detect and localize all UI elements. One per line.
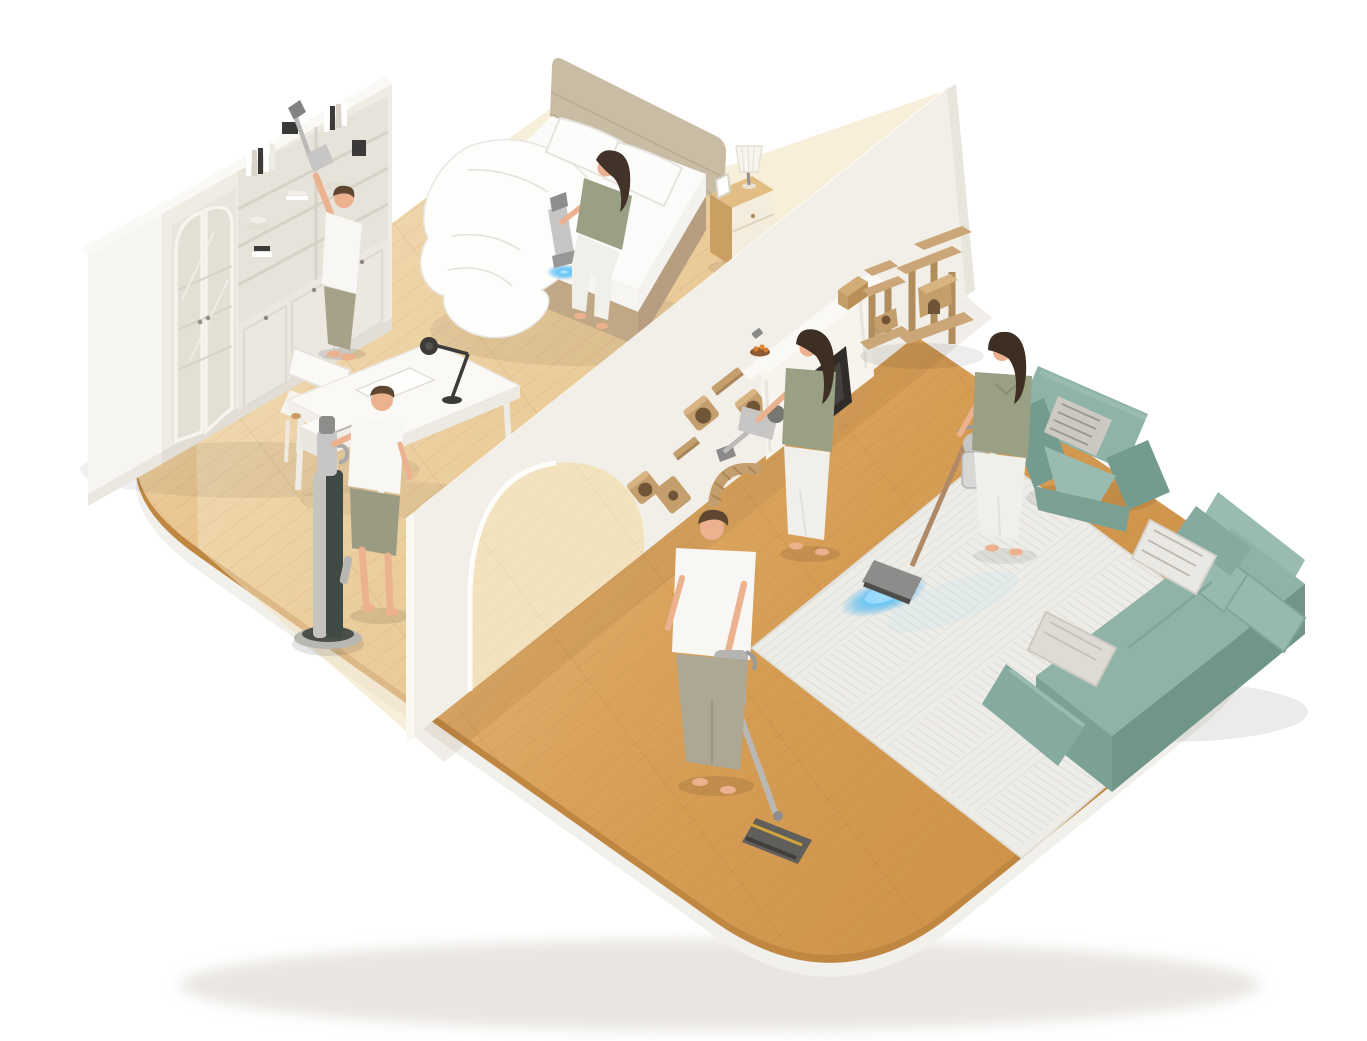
foot: [815, 549, 829, 556]
foot: [327, 351, 341, 358]
foot: [385, 608, 399, 616]
fruit: [764, 348, 769, 353]
cup: [291, 413, 301, 419]
pants: [350, 488, 400, 556]
shadow: [973, 548, 1037, 564]
bookshelf-side-panel: [88, 214, 162, 494]
shadow: [678, 776, 754, 796]
tube-joint: [773, 811, 783, 821]
scene-stage: [0, 0, 1367, 1041]
shadow: [780, 546, 840, 562]
foot: [574, 313, 586, 319]
foot: [692, 778, 708, 786]
dock-pillar-dark: [326, 470, 343, 638]
drawer-knob: [751, 214, 755, 218]
tshirt: [672, 548, 756, 660]
door-handle: [198, 320, 203, 325]
foot: [789, 543, 803, 550]
docked-vacuum-body: [317, 430, 337, 476]
isometric-home-illustration: [0, 0, 1367, 1041]
dock-pillar-light: [313, 472, 327, 638]
foot: [361, 604, 375, 612]
cat-cube-hole: [882, 316, 891, 325]
shadow: [860, 343, 984, 369]
foot: [596, 323, 608, 329]
door-handle: [206, 316, 211, 321]
desk-lamp-lens: [425, 342, 433, 350]
docked-vacuum-cap: [319, 416, 335, 434]
bookshelf-arched-glass-doors: [172, 188, 236, 445]
platform-ground-shadow: [180, 939, 1260, 1031]
foot: [720, 786, 736, 794]
foot: [341, 354, 355, 361]
leg: [388, 556, 390, 606]
foot: [1009, 549, 1023, 556]
leg: [362, 550, 366, 602]
handheld-vacuum-brush: [288, 100, 306, 120]
fruit: [759, 344, 764, 349]
shadow: [350, 608, 410, 624]
tshirt: [322, 212, 362, 294]
pants: [784, 446, 830, 540]
foot: [985, 545, 999, 552]
wall-left-edge: [406, 512, 414, 744]
fruit: [753, 346, 758, 351]
tshirt: [348, 416, 404, 494]
